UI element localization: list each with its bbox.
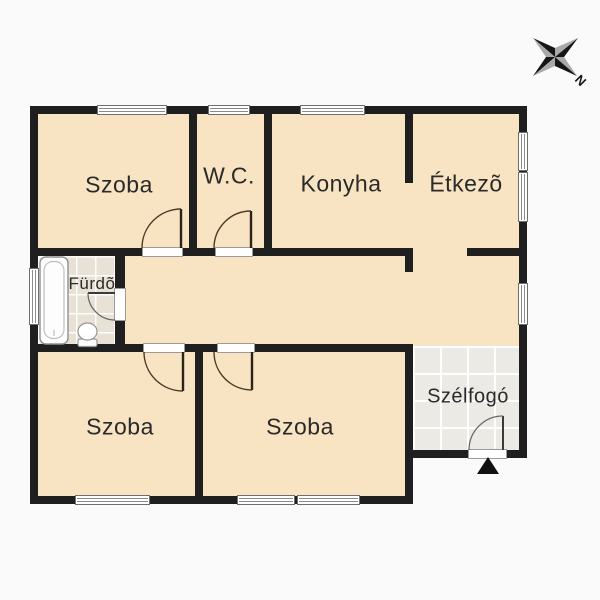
wall-hall-bottom-3 (255, 344, 413, 352)
wall-hall-top-1 (38, 248, 142, 256)
window-bottom-szoba-mid-2 (297, 495, 360, 505)
wall-hall-top-4 (467, 248, 519, 256)
interior-floor-bottom (38, 450, 413, 496)
wall-hall-top-stub (405, 256, 413, 272)
wall-szoba-wc (189, 114, 197, 256)
wall-hall-bottom-2 (185, 344, 217, 352)
door-opening-szoba-top (142, 247, 183, 257)
wall-hall-top-2 (183, 248, 215, 256)
wall-wc-konyha (264, 114, 272, 256)
window-left-bathroom (29, 268, 39, 325)
wall-hall-top-3 (253, 248, 413, 256)
door-opening-wc (215, 247, 253, 257)
room-label-etkezo: Étkezõ (429, 171, 502, 198)
window-right-etkezo-2 (518, 172, 528, 222)
window-right-etkezo-1 (518, 132, 528, 171)
wall-hall-bottom-1 (38, 344, 143, 352)
window-bottom-szoba-mid-1 (237, 495, 295, 505)
door-opening-szoba-bl (143, 343, 185, 353)
floor-plan: N Szoba W.C. Konyha Étkezõ Fürdõ Szoba S… (0, 0, 600, 600)
wall-szoba-divider (195, 352, 203, 496)
compass-rose: N (533, 38, 589, 89)
wall-szoba-entry (405, 344, 413, 504)
wall-bathroom-right-lower (115, 321, 125, 344)
window-top-szoba (97, 105, 167, 115)
wall-konyha-etkezo (405, 114, 413, 183)
door-opening-bathroom (114, 288, 126, 321)
room-label-szoba-bottom-middle: Szoba (266, 414, 334, 441)
window-bottom-szoba-left (75, 495, 150, 505)
room-label-szoba-bottom-left: Szoba (86, 414, 154, 441)
room-label-wc: W.C. (203, 163, 255, 190)
wall-entry-bottom (405, 450, 527, 458)
room-label-furdo: Fürdõ (69, 274, 116, 294)
wall-bathroom-right-upper (115, 256, 125, 288)
window-top-wc (208, 105, 250, 115)
window-top-konyha (300, 105, 365, 115)
bathroom-tile-floor (38, 256, 115, 344)
room-label-konyha: Konyha (300, 171, 381, 198)
entrance-arrow (477, 457, 499, 474)
window-right-hall (518, 283, 528, 325)
room-label-szelfogo: Szélfogó (427, 386, 509, 409)
room-label-szoba-top-left: Szoba (85, 172, 153, 199)
door-opening-szoba-bm (217, 343, 255, 353)
compass-north-label: N (572, 72, 589, 89)
